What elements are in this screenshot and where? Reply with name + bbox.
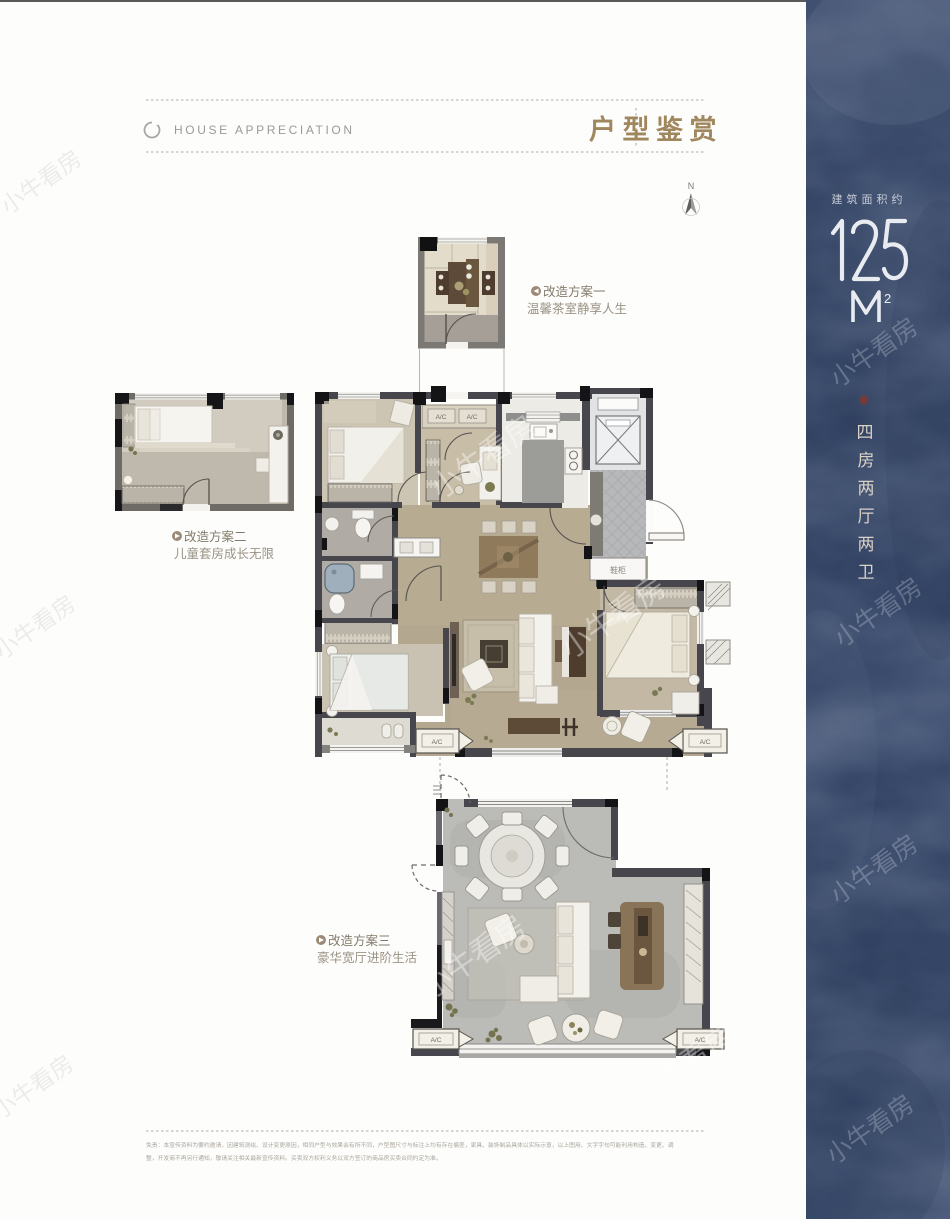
svg-text:建筑面积约: 建筑面积约 — [832, 192, 907, 206]
svg-text:两: 两 — [858, 479, 875, 498]
svg-text:厅: 厅 — [858, 507, 875, 526]
svg-text:房: 房 — [858, 451, 875, 470]
svg-text:整，开发商不再另行通知，敬请关注相关最新宣传资料。买卖双方权: 整，开发商不再另行通知，敬请关注相关最新宣传资料。买卖双方权利义务以双方签订的商… — [146, 1154, 442, 1162]
svg-text:四: 四 — [857, 423, 876, 442]
svg-text:A/C: A/C — [700, 739, 711, 746]
svg-text:鞋柜: 鞋柜 — [610, 565, 626, 575]
svg-text:A/C: A/C — [431, 1037, 442, 1044]
svg-text:两: 两 — [858, 535, 875, 554]
svg-text:N: N — [688, 181, 695, 191]
svg-text:免责：本宣传资料为要约邀请，因建筑测绘、设计变更原因，相同户: 免责：本宣传资料为要约邀请，因建筑测绘、设计变更原因，相同户型与效果会有所不同，… — [146, 1141, 674, 1149]
svg-text:2: 2 — [884, 291, 891, 306]
svg-text:A/C: A/C — [432, 739, 443, 746]
svg-text:改造方案三: 改造方案三 — [328, 933, 391, 948]
svg-text:卫: 卫 — [858, 563, 875, 582]
svg-text:温馨茶室静享人生: 温馨茶室静享人生 — [527, 301, 627, 316]
svg-text:改造方案二: 改造方案二 — [184, 529, 247, 544]
svg-text:A/C: A/C — [467, 414, 478, 421]
svg-text:HOUSE APPRECIATION: HOUSE APPRECIATION — [174, 123, 355, 137]
svg-text:儿童套房成长无限: 儿童套房成长无限 — [174, 546, 275, 561]
svg-text:A/C: A/C — [436, 414, 447, 421]
svg-text:豪华宽厅进阶生活: 豪华宽厅进阶生活 — [317, 950, 417, 965]
svg-text:户型鉴赏: 户型鉴赏 — [589, 114, 723, 145]
svg-text:改造方案一: 改造方案一 — [543, 284, 606, 299]
